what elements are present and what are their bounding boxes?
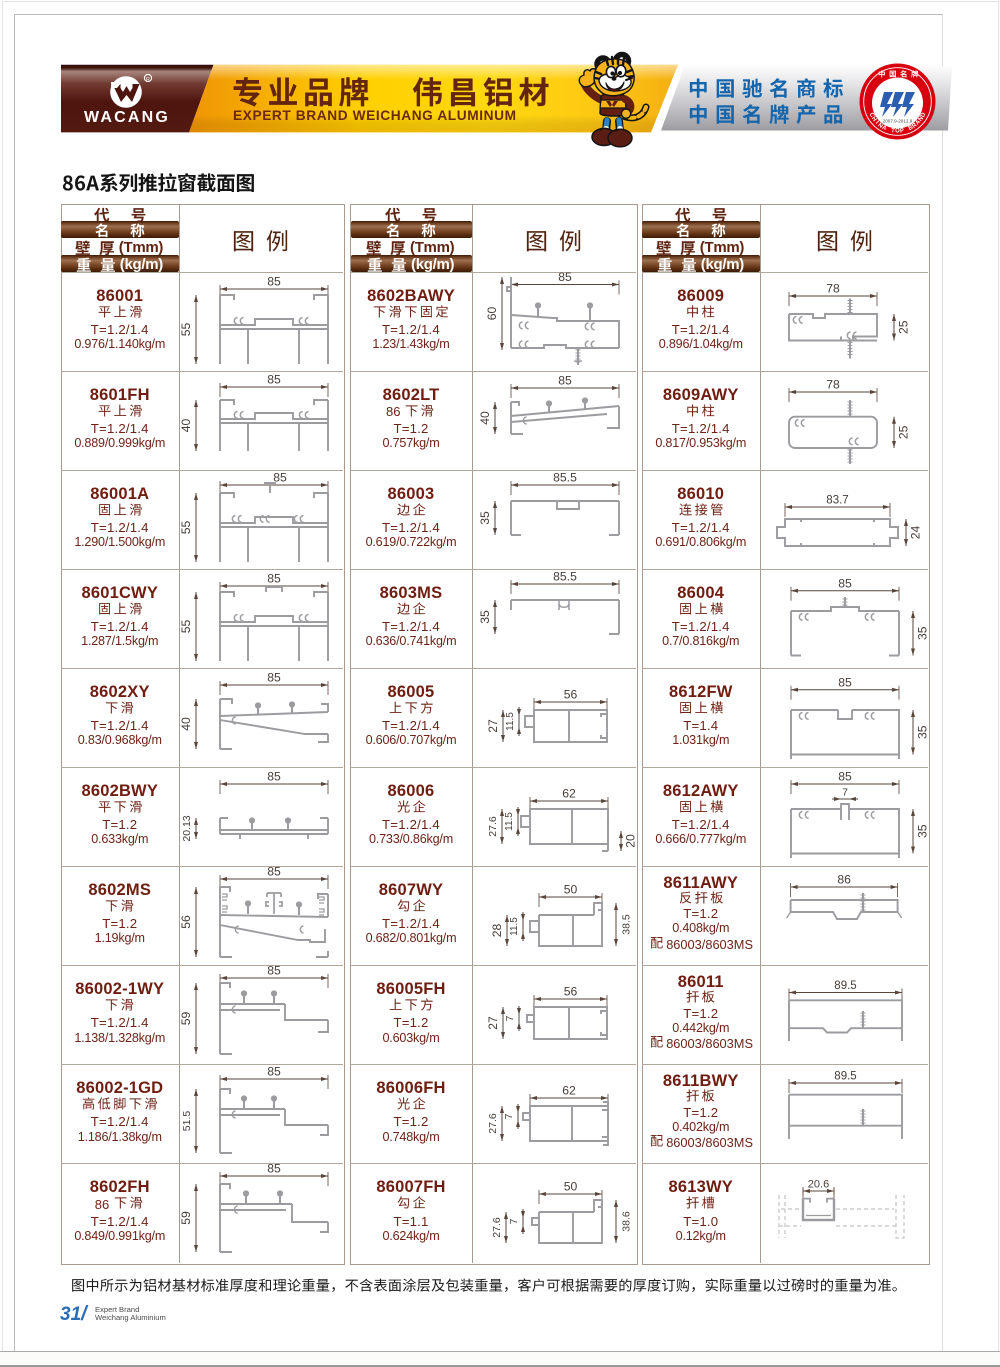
svg-text:2007.9-2012.9: 2007.9-2012.9 (883, 119, 913, 124)
svg-text:40: 40 (179, 717, 193, 731)
svg-text:40: 40 (179, 418, 193, 432)
svg-text:60: 60 (485, 306, 499, 320)
svg-text:55: 55 (179, 322, 193, 336)
svg-text:27.6: 27.6 (487, 1113, 499, 1134)
svg-text:78: 78 (826, 281, 840, 295)
svg-text:7: 7 (842, 787, 848, 799)
svg-text:85: 85 (838, 675, 852, 689)
svg-text:62: 62 (562, 787, 576, 801)
svg-text:83.7: 83.7 (826, 494, 848, 506)
svg-text:7: 7 (508, 1219, 520, 1225)
svg-text:85: 85 (558, 270, 572, 284)
svg-text:25: 25 (897, 320, 911, 334)
svg-text:38.6: 38.6 (621, 1212, 633, 1233)
svg-text:40: 40 (478, 411, 492, 425)
svg-text:89.5: 89.5 (834, 980, 856, 992)
svg-text:86: 86 (837, 873, 851, 887)
svg-text:85: 85 (267, 865, 281, 879)
svg-text:62: 62 (562, 1084, 576, 1098)
svg-text:35: 35 (916, 824, 930, 838)
svg-text:11.5: 11.5 (504, 812, 515, 831)
svg-text:56: 56 (564, 687, 578, 701)
svg-text:85: 85 (267, 571, 281, 585)
svg-text:85.5: 85.5 (553, 470, 577, 484)
svg-text:55: 55 (179, 520, 193, 534)
svg-text:56: 56 (179, 915, 193, 929)
svg-text:20.13: 20.13 (181, 815, 193, 841)
svg-text:56: 56 (564, 985, 578, 999)
svg-text:85: 85 (267, 670, 281, 684)
svg-text:35: 35 (916, 725, 930, 739)
svg-text:85: 85 (558, 373, 572, 387)
svg-text:85: 85 (267, 770, 281, 784)
svg-text:38.5: 38.5 (621, 914, 633, 935)
svg-text:27.6: 27.6 (491, 1218, 503, 1239)
svg-text:24: 24 (909, 525, 923, 539)
svg-text:50: 50 (564, 1180, 578, 1194)
svg-text:25: 25 (897, 425, 911, 439)
svg-text:11.5: 11.5 (509, 917, 520, 936)
svg-text:59: 59 (179, 1012, 193, 1026)
svg-text:85: 85 (267, 964, 281, 978)
svg-text:7: 7 (503, 1114, 515, 1120)
svg-text:85.5: 85.5 (553, 569, 577, 583)
svg-text:28: 28 (490, 924, 504, 938)
svg-text:85: 85 (838, 770, 852, 784)
svg-text:85: 85 (838, 576, 852, 590)
svg-text:50: 50 (564, 883, 578, 897)
svg-text:59: 59 (179, 1211, 193, 1225)
svg-text:85: 85 (267, 372, 281, 386)
svg-text:20.6: 20.6 (808, 1179, 829, 1191)
svg-text:85: 85 (267, 1162, 281, 1176)
svg-text:89.5: 89.5 (834, 1071, 856, 1083)
svg-text:55: 55 (179, 619, 193, 633)
svg-text:27: 27 (486, 1016, 500, 1030)
svg-text:27.6: 27.6 (487, 816, 499, 837)
svg-text:20: 20 (624, 834, 638, 848)
svg-text:R: R (146, 77, 150, 83)
svg-text:35: 35 (916, 626, 930, 640)
svg-text:51.5: 51.5 (181, 1111, 193, 1132)
svg-text:85: 85 (267, 1065, 281, 1079)
svg-text:78: 78 (826, 377, 840, 391)
svg-text:85: 85 (267, 274, 281, 288)
svg-text:27: 27 (486, 719, 500, 733)
svg-text:7: 7 (504, 1016, 516, 1022)
svg-text:35: 35 (478, 511, 492, 525)
svg-text:35: 35 (478, 610, 492, 624)
svg-text:11.5: 11.5 (505, 712, 516, 731)
